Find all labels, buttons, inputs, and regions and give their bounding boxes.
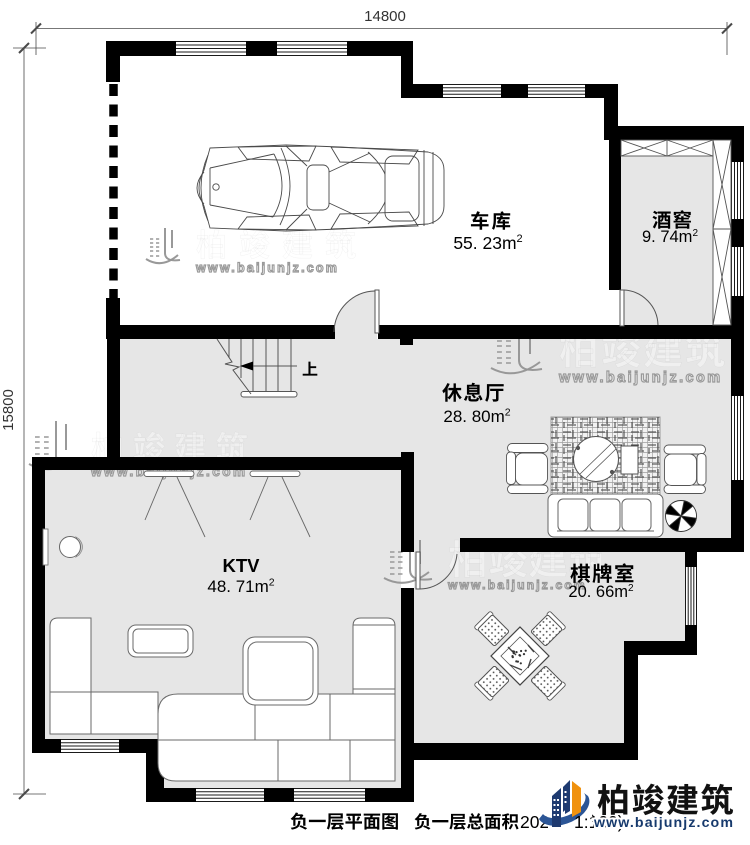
svg-text:20. 66m2: 20. 66m2 bbox=[568, 583, 634, 601]
svg-text:48. 71m2: 48. 71m2 bbox=[207, 577, 274, 597]
svg-text:www.baijunjz.com: www.baijunjz.com bbox=[447, 578, 587, 592]
svg-text:15800: 15800 bbox=[0, 389, 17, 431]
svg-text:www.baijunjz.com: www.baijunjz.com bbox=[558, 370, 723, 386]
svg-text:www.baijunjz.com: www.baijunjz.com bbox=[195, 261, 339, 275]
svg-text:14800: 14800 bbox=[364, 8, 406, 25]
svg-text:28. 80m2: 28. 80m2 bbox=[443, 407, 510, 427]
svg-text:www.baijunjz.com: www.baijunjz.com bbox=[593, 815, 734, 831]
svg-text:9. 74m2: 9. 74m2 bbox=[642, 228, 698, 246]
svg-text:KTV: KTV bbox=[223, 555, 261, 576]
svg-text:55. 23m2: 55. 23m2 bbox=[453, 233, 522, 253]
